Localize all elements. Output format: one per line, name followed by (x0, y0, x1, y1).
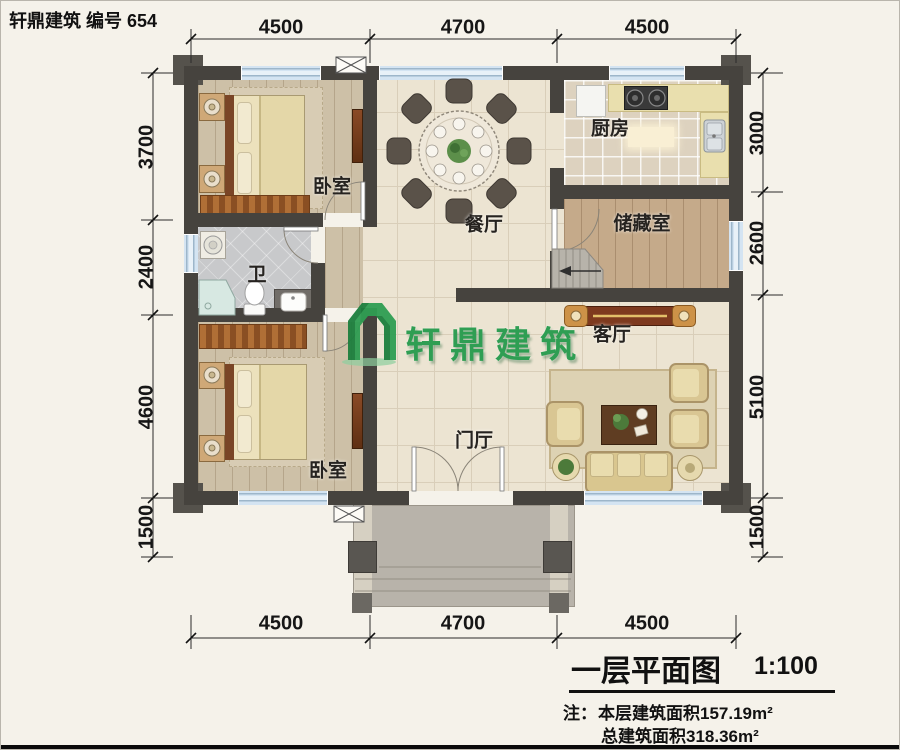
room-label-foyer: 门厅 (455, 426, 493, 453)
sofa-cushion (590, 453, 614, 477)
room-label-bedroom-bottom: 卧室 (309, 456, 347, 483)
stove (624, 86, 668, 110)
wall-bedroom-top-right (363, 80, 377, 227)
sheet-title: 轩鼎建筑 编号 654 (9, 7, 157, 33)
armchair-cushion (557, 408, 580, 440)
wall-living-top (456, 288, 743, 302)
wall-console (352, 109, 363, 163)
title-underline (569, 690, 835, 693)
refrigerator (576, 85, 606, 117)
window (729, 221, 743, 271)
wall-console (352, 393, 363, 449)
window (584, 491, 703, 505)
window (609, 66, 685, 80)
dim-right-4: 1500 (747, 505, 770, 550)
wall-kitchen-storage (550, 185, 743, 199)
wall-stub (361, 308, 377, 322)
bed-blanket (259, 365, 306, 459)
room-label-bath: 卫 (247, 260, 266, 287)
dim-right-2: 2600 (747, 221, 770, 266)
nightstand (199, 362, 225, 389)
window (379, 66, 503, 80)
nightstand (199, 435, 225, 462)
pillow (237, 102, 252, 144)
sofa-cushion (617, 453, 641, 477)
note-line2: 总建筑面积318.36m² (601, 722, 759, 747)
dim-top-3: 4500 (625, 17, 670, 40)
plan-title: 一层平面图 (571, 646, 721, 690)
porch-column-base-left (352, 593, 372, 613)
dim-left-4: 1500 (136, 505, 159, 550)
note-label: 注： (563, 699, 597, 724)
porch-column-base-right (549, 593, 569, 613)
dim-top-1: 4500 (259, 17, 304, 40)
wall-bath-bottom (184, 308, 325, 322)
window (184, 234, 198, 273)
plan-scale: 1:100 (754, 652, 818, 681)
room-label-dining: 餐厅 (465, 210, 503, 237)
bed-headboard (225, 95, 234, 201)
porch-column-left (348, 541, 377, 573)
pillow (237, 152, 252, 194)
bed-blanket (259, 96, 304, 200)
pillow (237, 415, 252, 453)
plant (558, 459, 574, 475)
porch-column-right (543, 541, 572, 573)
armchair-cushion (673, 415, 699, 443)
wardrobe (199, 324, 307, 349)
side-table-decor (685, 463, 695, 473)
room-label-storage: 储藏室 (613, 209, 670, 236)
coffee-table (601, 405, 657, 445)
dim-left-1: 3700 (136, 125, 159, 170)
wall-exterior-right (729, 66, 743, 505)
porch-slab (353, 505, 575, 607)
window (238, 491, 328, 505)
floor-plan-sheet: 轩鼎建筑 编号 654 (0, 0, 900, 750)
watermark-brand-text: 轩鼎建筑 (405, 316, 585, 368)
window (241, 66, 321, 80)
washing-machine (200, 231, 226, 259)
room-label-kitchen: 厨房 (591, 114, 629, 141)
kitchen-counter-side (700, 112, 729, 178)
dim-top-2: 4700 (441, 17, 486, 40)
room-label-bedroom-top: 卧室 (313, 172, 351, 199)
room-label-living: 客厅 (593, 320, 631, 347)
armchair-cushion (673, 369, 699, 397)
wall-bedroom-top-bottom (184, 213, 323, 227)
nightstand (199, 93, 225, 121)
dim-bottom-1: 4500 (259, 613, 304, 636)
dim-right-1: 3000 (747, 111, 770, 156)
dim-bottom-2: 4700 (441, 613, 486, 636)
nightstand (199, 165, 225, 193)
corridor-floor (325, 227, 363, 308)
wall-bath-right (311, 263, 325, 308)
dim-left-3: 4600 (136, 385, 159, 430)
wall-kitchen-left-upper (550, 80, 564, 113)
tv-cabinet-end (672, 305, 696, 327)
dim-bottom-3: 4500 (625, 613, 670, 636)
wall-storage-left-stub (550, 199, 564, 209)
bed-headboard (225, 364, 234, 460)
kitchen-island-light (628, 127, 674, 147)
wall-exterior-left (184, 66, 198, 505)
pillow (237, 370, 252, 408)
sofa-cushion (644, 453, 668, 477)
sheet-bottom-bar (1, 745, 900, 750)
dim-left-2: 2400 (136, 245, 159, 290)
note-line1: 本层建筑面积157.19m² (598, 699, 773, 724)
wall-bedroom-bottom-right (363, 322, 377, 491)
dim-right-3: 5100 (747, 375, 770, 420)
